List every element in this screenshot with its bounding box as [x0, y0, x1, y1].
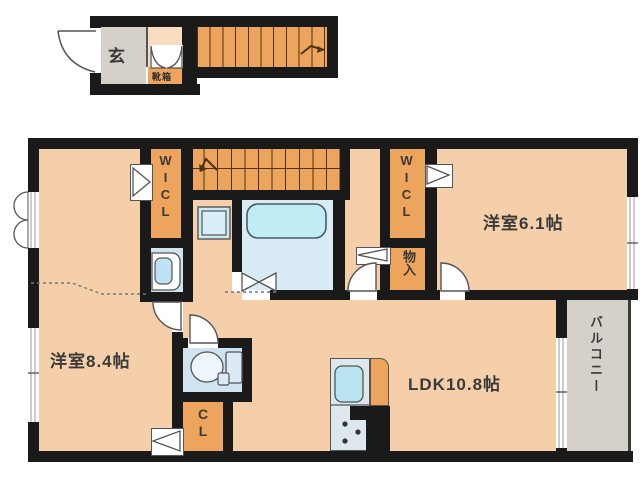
wall	[465, 290, 556, 300]
entrance-inner-floor	[146, 27, 184, 67]
wall	[190, 190, 350, 200]
closet-label: CL	[195, 406, 211, 450]
door-pocket-storage	[356, 247, 391, 265]
wall-bottom	[28, 451, 633, 462]
wall-top	[28, 138, 638, 149]
kitchen-counter	[330, 358, 370, 451]
wall	[90, 84, 200, 95]
ldk-label: LDK10.8帖	[408, 370, 501, 395]
casement-window-icon	[14, 192, 28, 248]
wall	[223, 402, 233, 451]
kitchen-wall-block	[366, 406, 390, 451]
window-right-room61	[627, 197, 638, 289]
door-pocket-wicl1	[130, 164, 153, 201]
wall	[232, 200, 242, 272]
room84-label: 洋室8.4帖	[50, 347, 131, 372]
balcony-outer-edge	[628, 300, 631, 451]
door-opening-bath-bottom	[242, 290, 270, 300]
stairs-1f	[197, 27, 327, 67]
wicl2-label: WICL	[399, 153, 414, 239]
wall	[333, 190, 345, 300]
washroom-alcove-floor	[150, 246, 183, 292]
balcony-label: バルコニー	[586, 315, 605, 437]
window-balcony-sliding	[556, 338, 567, 448]
wall	[327, 16, 338, 78]
floor-plan: 玄 靴箱 WICL WICL 物入 洋室6.1帖 洋室8.4帖 LDK10.8帖…	[0, 0, 640, 480]
window-left-casement	[28, 192, 39, 248]
wall	[90, 16, 338, 27]
stairs-2f	[190, 149, 340, 190]
wicl1-label: WICL	[158, 153, 173, 239]
room61-label: 洋室6.1帖	[483, 209, 564, 234]
door-opening-bath	[232, 272, 242, 292]
door-pocket-wicl2	[425, 164, 453, 188]
door-opening-hall-ldk	[350, 290, 377, 300]
bathroom-floor	[242, 200, 333, 290]
shoebox-label: 靴箱	[152, 70, 172, 83]
wall	[380, 145, 390, 300]
wall	[172, 292, 183, 302]
kitchen-wall-stub	[350, 406, 366, 420]
toilet-room-floor	[182, 348, 242, 392]
wall	[270, 290, 350, 300]
wall	[183, 246, 193, 302]
genkan-label: 玄	[108, 42, 125, 67]
door-pocket-closet	[151, 428, 184, 456]
entrance-door-opening	[90, 28, 101, 73]
wall-balcony-top	[556, 290, 638, 300]
door-opening-room61	[440, 290, 465, 300]
wall	[172, 392, 252, 402]
door-opening-toilet	[188, 338, 218, 348]
storage-label: 物入	[399, 250, 418, 290]
kitchen-side-unit	[370, 358, 389, 406]
window-left-lower	[28, 328, 39, 422]
wall	[172, 338, 188, 348]
door-opening-room84	[172, 302, 183, 332]
wall	[182, 67, 338, 78]
